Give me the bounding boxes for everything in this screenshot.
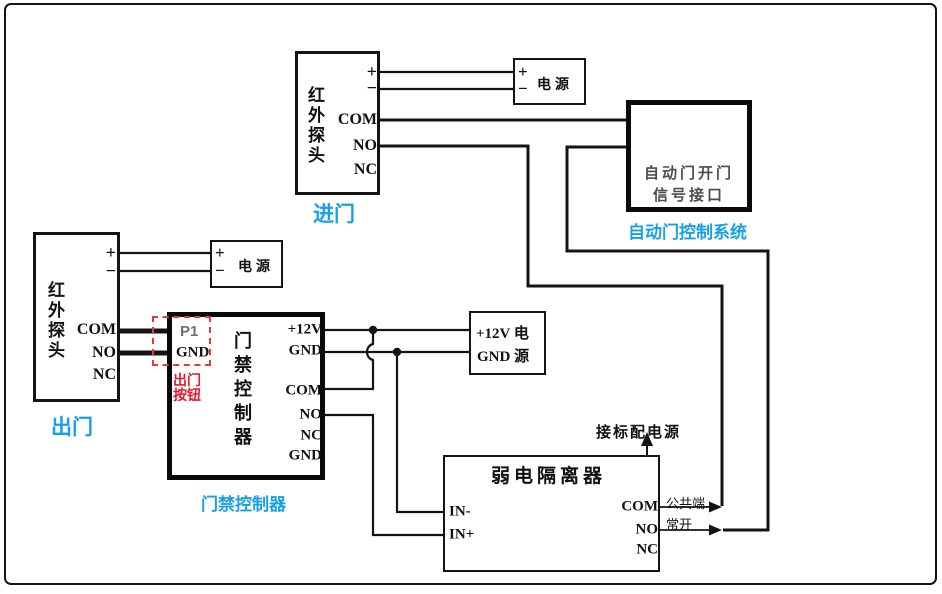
wire-ctrl-no-to-in-plus (325, 415, 443, 535)
exit-terminal-com: COM (56, 321, 116, 339)
entry-terminal-minus: − (317, 78, 377, 99)
autodoor-system-label: 自动门控制系统 (628, 218, 747, 243)
isolator-terminal-no: NO (598, 522, 658, 539)
ctrl-terminal-12v: +12V (262, 322, 322, 339)
ctrl-terminal-gnd: GND (262, 343, 322, 360)
exit-terminal-minus: − (56, 261, 116, 282)
ctrl-terminal-nc: NC (262, 428, 322, 445)
isolator-terminal-com: COM (598, 499, 658, 516)
wire-12v-to-ctrl-com (325, 330, 373, 389)
entry-terminal-nc: NC (317, 161, 377, 179)
exit-terminal-no: NO (56, 344, 116, 362)
ctrl-terminal-gnd2: GND (262, 448, 322, 465)
entry-terminal-no: NO (317, 137, 377, 155)
exit-button-label-line1: 出门 (173, 373, 201, 388)
junction-dot-gnd (393, 348, 401, 356)
wire-gnd-to-in-minus (397, 352, 443, 512)
controller-title: 门禁控制器 (229, 331, 255, 451)
controller-label: 门禁控制器 (201, 490, 286, 515)
exit-button-label-line2: 按钮 (173, 388, 201, 403)
junction-dot-12v (369, 326, 377, 334)
wiring-diagram: 红外探头 + − COM NO NC 进门 + − 电源 自动门开门 信号接口 … (0, 0, 942, 594)
isolator-com-tag: 公共端 (666, 493, 705, 512)
arrowhead-no (709, 525, 722, 536)
entry-power-title: 电源 (537, 74, 573, 94)
autodoor-line2: 信号接口 (626, 184, 752, 205)
isolator-terminal-nc: NC (598, 542, 658, 559)
exit-power-title: 电源 (238, 256, 274, 276)
isolator-power-note: 接标配电源 (596, 421, 681, 442)
exit-button-dashed-outline (152, 316, 211, 366)
entry-power-minus: − (518, 79, 528, 99)
autodoor-line1: 自动门开门 (626, 162, 752, 183)
entry-door-label: 进门 (313, 198, 355, 228)
exit-power-plus: + (215, 243, 225, 263)
exit-power-minus: − (215, 261, 225, 281)
isolator-title: 弱电隔离器 (491, 461, 606, 488)
arrowhead-com (709, 502, 722, 513)
ctrl-terminal-no: NO (262, 407, 322, 424)
isolator-terminal-in-minus: IN- (449, 504, 471, 521)
dc-power-row1: +12V 电 (476, 322, 529, 343)
isolator-no-tag: 常开 (666, 514, 692, 533)
ctrl-terminal-com: COM (262, 383, 322, 400)
dc-power-row2: GND 源 (477, 345, 529, 366)
exit-door-label: 出门 (51, 411, 93, 441)
exit-terminal-nc: NC (56, 366, 116, 384)
isolator-terminal-in-plus: IN+ (449, 527, 474, 544)
entry-terminal-com: COM (317, 111, 377, 129)
